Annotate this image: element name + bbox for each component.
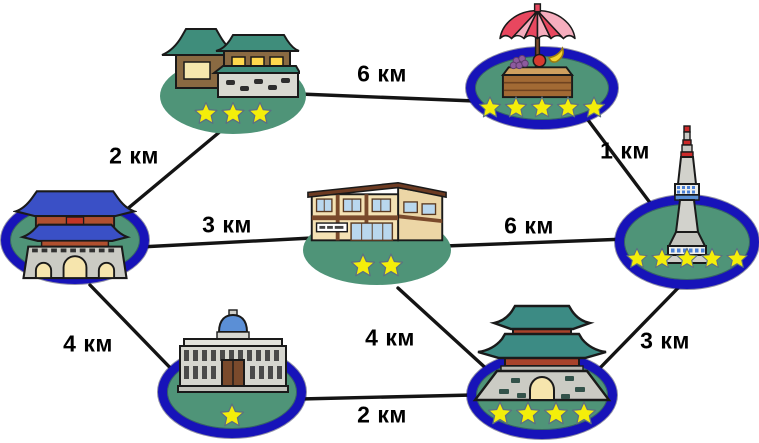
edge-distance-label: 4 км <box>63 331 113 358</box>
fruit-stand-icon <box>489 2 586 100</box>
edge-stone-palace-to-temple-gate <box>300 395 473 399</box>
edge-palace-gate-to-shop-building <box>140 238 312 247</box>
star-icon <box>531 96 554 119</box>
edge-distance-label: 2 км <box>109 143 159 170</box>
namsan-tower-icon <box>659 118 715 266</box>
palace-gate-icon <box>13 178 137 280</box>
edge-distance-label: 6 км <box>357 61 407 88</box>
star-icon <box>479 96 502 119</box>
star-icon <box>726 247 748 269</box>
star-icon <box>248 101 272 125</box>
stone-palace-icon-holder <box>170 308 296 394</box>
edge-distance-label: 4 км <box>365 325 415 352</box>
star-icon <box>651 247 673 269</box>
star-icon <box>626 247 648 269</box>
edge-hanok-house-to-fruit-stand <box>300 94 475 101</box>
temple-gate-icon-holder <box>467 302 617 402</box>
rating-stars <box>351 253 404 278</box>
hanok-house-icon <box>160 22 300 104</box>
star-icon <box>676 247 698 269</box>
rating-stars <box>194 101 272 125</box>
stone-palace-icon <box>170 308 296 394</box>
star-icon <box>544 401 569 426</box>
edge-fruit-stand-to-namsan-tower <box>588 120 657 212</box>
star-icon <box>572 401 597 426</box>
fruit-stand-icon-holder <box>489 2 586 100</box>
temple-gate-icon <box>467 302 617 402</box>
star-icon <box>701 247 723 269</box>
rating-stars <box>626 247 748 269</box>
namsan-tower-icon-holder <box>659 118 715 266</box>
palace-gate-icon-holder <box>13 178 137 280</box>
rating-stars <box>479 96 606 119</box>
edge-shop-building-to-namsan-tower <box>445 239 627 246</box>
rating-stars <box>488 401 597 426</box>
star-icon <box>379 253 404 278</box>
hanok-house-icon-holder <box>160 22 300 104</box>
star-icon <box>221 101 245 125</box>
edge-distance-label: 3 км <box>640 328 690 355</box>
star-icon <box>516 401 541 426</box>
star-icon <box>351 253 376 278</box>
diagram-canvas: 6 км2 км1 км3 км6 км4 км4 км2 км3 км <box>0 0 759 443</box>
rating-stars <box>220 403 245 428</box>
star-icon <box>505 96 528 119</box>
star-icon <box>557 96 580 119</box>
edge-distance-label: 3 км <box>202 212 252 239</box>
edge-distance-label: 2 км <box>357 402 407 429</box>
shop-building-icon-holder <box>306 178 448 248</box>
star-icon <box>194 101 218 125</box>
edge-distance-label: 1 км <box>600 138 650 165</box>
edge-distance-label: 6 км <box>504 213 554 240</box>
star-icon <box>488 401 513 426</box>
star-icon <box>583 96 606 119</box>
star-icon <box>220 403 245 428</box>
shop-building-icon <box>306 178 448 248</box>
